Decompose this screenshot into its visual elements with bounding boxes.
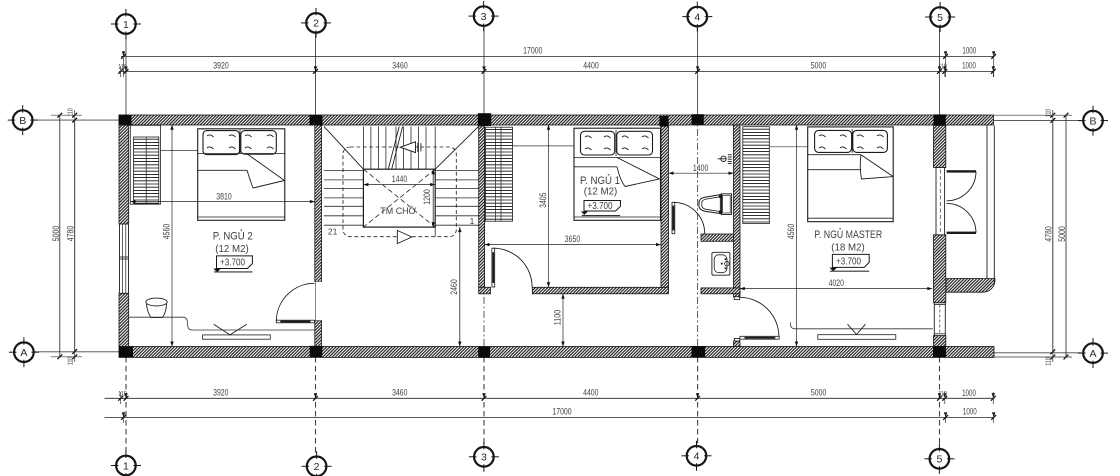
svg-text:1000: 1000 xyxy=(963,406,977,416)
svg-text:110: 110 xyxy=(1046,109,1053,118)
svg-text:(12 M2): (12 M2) xyxy=(584,187,618,198)
svg-text:P. NGỦ 2: P. NGỦ 2 xyxy=(213,230,253,243)
svg-text:4: 4 xyxy=(694,451,700,463)
svg-text:3405: 3405 xyxy=(538,193,549,208)
svg-text:17000: 17000 xyxy=(523,45,542,56)
svg-text:110: 110 xyxy=(938,63,947,70)
svg-text:4020: 4020 xyxy=(829,278,844,289)
svg-text:1100: 1100 xyxy=(552,310,563,325)
svg-text:1000: 1000 xyxy=(962,45,976,55)
svg-text:+3.700: +3.700 xyxy=(836,255,861,267)
svg-text:5000: 5000 xyxy=(811,60,826,71)
svg-text:1000: 1000 xyxy=(962,60,976,70)
svg-text:3920: 3920 xyxy=(213,387,228,398)
svg-text:3460: 3460 xyxy=(392,60,407,71)
svg-text:1440: 1440 xyxy=(392,174,407,185)
svg-text:1: 1 xyxy=(470,216,475,226)
svg-text:5: 5 xyxy=(936,454,942,466)
svg-text:3650: 3650 xyxy=(565,234,580,245)
svg-text:110: 110 xyxy=(68,108,75,117)
svg-text:5000: 5000 xyxy=(811,387,826,398)
svg-text:3920: 3920 xyxy=(213,60,228,71)
svg-text:3810: 3810 xyxy=(216,191,231,202)
svg-text:P. NGỦ 1: P. NGỦ 1 xyxy=(580,174,620,187)
svg-text:2: 2 xyxy=(313,18,319,30)
svg-text:TM CHỜ: TM CHỜ xyxy=(380,206,416,217)
svg-text:110: 110 xyxy=(1046,357,1053,366)
svg-text:1: 1 xyxy=(123,460,129,472)
svg-text:4400: 4400 xyxy=(583,387,598,398)
svg-text:21: 21 xyxy=(328,227,338,237)
svg-text:110: 110 xyxy=(938,391,947,398)
svg-text:A: A xyxy=(1089,348,1096,360)
svg-text:4: 4 xyxy=(694,11,700,23)
svg-text:4780: 4780 xyxy=(66,226,77,241)
svg-text:1000: 1000 xyxy=(962,388,976,398)
svg-text:1: 1 xyxy=(123,19,129,31)
svg-text:17000: 17000 xyxy=(552,406,571,417)
svg-text:5: 5 xyxy=(937,12,943,24)
svg-text:1400: 1400 xyxy=(693,163,708,174)
svg-text:3460: 3460 xyxy=(392,387,407,398)
svg-text:3: 3 xyxy=(481,11,487,23)
svg-text:5000: 5000 xyxy=(1057,226,1068,241)
svg-text:4560: 4560 xyxy=(786,224,797,239)
svg-text:A: A xyxy=(20,347,27,359)
svg-text:2460: 2460 xyxy=(449,279,460,294)
svg-text:5000: 5000 xyxy=(51,226,62,241)
svg-text:(12 M2): (12 M2) xyxy=(215,244,249,255)
svg-text:4560: 4560 xyxy=(161,224,172,239)
svg-text:2: 2 xyxy=(314,461,320,473)
svg-text:+3.700: +3.700 xyxy=(220,256,245,268)
svg-text:110: 110 xyxy=(68,357,75,366)
svg-text:B: B xyxy=(1089,115,1096,127)
svg-text:1200: 1200 xyxy=(422,189,433,204)
svg-text:B: B xyxy=(19,115,26,127)
svg-text:110: 110 xyxy=(118,64,127,71)
svg-text:P. NGỦ MASTER: P. NGỦ MASTER xyxy=(814,228,882,241)
svg-text:110: 110 xyxy=(118,391,127,398)
svg-text:(18 M2): (18 M2) xyxy=(831,242,865,253)
svg-text:4400: 4400 xyxy=(583,60,598,71)
svg-text:+3.700: +3.700 xyxy=(588,200,613,212)
svg-text:3: 3 xyxy=(481,452,487,464)
